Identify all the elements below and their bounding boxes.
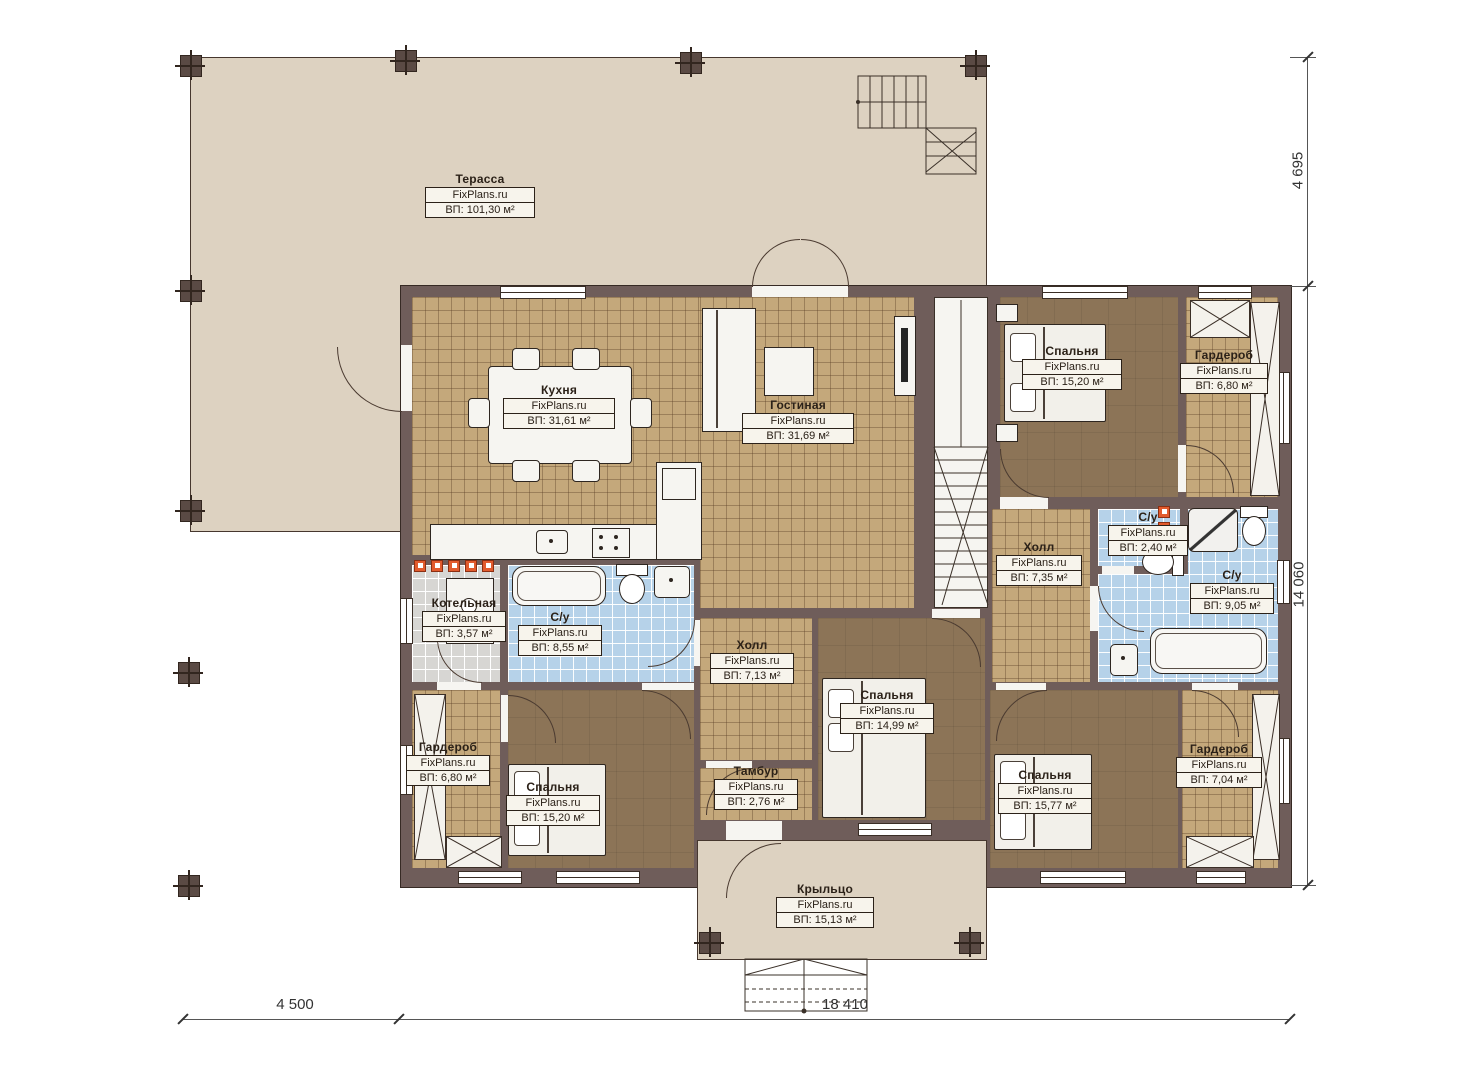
room-name: Кухня: [503, 383, 615, 397]
nightstand: [996, 424, 1018, 442]
room-name: С/у: [518, 610, 602, 624]
radiator-cell: [431, 560, 443, 572]
dimension-extension: [1290, 57, 1316, 58]
radiator-cell: [482, 560, 494, 572]
label-terrace: Терасса FixPlans.ru ВП: 101,30 м²: [425, 172, 535, 218]
room-name: Спальня: [840, 688, 934, 702]
dimension-line: [1307, 57, 1308, 886]
door-opening: [932, 609, 980, 618]
room-name: Холл: [710, 638, 794, 652]
door-opening: [501, 695, 508, 742]
dimension-extension: [1290, 885, 1316, 886]
window: [1040, 871, 1126, 884]
sink: [1110, 644, 1138, 676]
room-name: Гардероб: [1176, 742, 1262, 756]
brand-text: FixPlans.ru: [1023, 360, 1121, 375]
room-area: ВП: 7,13 м²: [711, 669, 793, 683]
window: [458, 871, 522, 884]
terrace-steps: [856, 72, 988, 178]
label-living-room: Гостиная FixPlans.ru ВП: 31,69 м²: [742, 398, 854, 444]
room-info-box: FixPlans.ru ВП: 15,77 м²: [998, 783, 1092, 814]
brand-text: FixPlans.ru: [841, 704, 933, 719]
room-name: Гардероб: [406, 740, 490, 754]
room-info-box: FixPlans.ru ВП: 15,20 м²: [506, 795, 600, 826]
room-info-box: FixPlans.ru ВП: 6,80 м²: [406, 755, 490, 786]
sink-tap: [1121, 656, 1125, 660]
room-info-box: FixPlans.ru ВП: 3,57 м²: [422, 611, 506, 642]
fridge: [662, 468, 696, 500]
chair: [630, 398, 652, 428]
room-area: ВП: 7,04 м²: [1177, 773, 1261, 787]
brand-text: FixPlans.ru: [999, 784, 1091, 799]
shower: [1188, 508, 1238, 552]
coffee-table: [764, 347, 814, 396]
brand-text: FixPlans.ru: [1181, 364, 1267, 379]
room-area: ВП: 31,69 м²: [743, 429, 853, 443]
wardrobe-hatch: [1190, 300, 1250, 338]
radiator-cell: [414, 560, 426, 572]
floor-plan: 4 695 14 060 4 500 18 410 Терасса FixPla…: [0, 0, 1473, 1080]
door-opening: [1192, 683, 1238, 690]
label-boiler-room: Котельная FixPlans.ru ВП: 3,57 м²: [422, 596, 506, 642]
burner: [614, 535, 618, 539]
wardrobe-hatch: [446, 836, 502, 868]
door-opening: [726, 821, 782, 840]
label-bedroom-bottom-left: Спальня FixPlans.ru ВП: 15,20 м²: [506, 780, 600, 826]
room-area: ВП: 31,61 м²: [504, 414, 614, 428]
label-wc-small: С/у FixPlans.ru ВП: 2,40 м²: [1108, 510, 1188, 556]
room-area: ВП: 6,80 м²: [407, 771, 489, 785]
room-info-box: FixPlans.ru ВП: 8,55 м²: [518, 625, 602, 656]
room-info-box: FixPlans.ru ВП: 7,35 м²: [996, 555, 1082, 586]
window: [1042, 286, 1128, 299]
brand-text: FixPlans.ru: [519, 626, 601, 641]
column: [395, 50, 417, 72]
room-area: ВП: 15,13 м²: [777, 913, 873, 927]
dimension-extension: [1290, 286, 1316, 287]
room-info-box: FixPlans.ru ВП: 6,80 м²: [1180, 363, 1268, 394]
bathtub: [512, 566, 606, 606]
burner: [599, 535, 603, 539]
label-porch: Крыльцо FixPlans.ru ВП: 15,13 м²: [776, 882, 874, 928]
chair: [572, 460, 600, 482]
column: [180, 280, 202, 302]
chair: [572, 348, 600, 370]
brand-text: FixPlans.ru: [777, 898, 873, 913]
room-name: Гостиная: [742, 398, 854, 412]
room-area: ВП: 9,05 м²: [1191, 599, 1273, 613]
dimension-label: 4 695: [1290, 141, 1307, 201]
room-area: ВП: 2,40 м²: [1109, 541, 1187, 555]
window: [400, 598, 413, 644]
brand-text: FixPlans.ru: [997, 556, 1081, 571]
room-name: Гардероб: [1180, 348, 1268, 362]
column: [959, 932, 981, 954]
room-info-box: FixPlans.ru ВП: 7,13 м²: [710, 653, 794, 684]
toilet-bowl: [1242, 516, 1266, 546]
door-opening: [694, 620, 700, 666]
brand-text: FixPlans.ru: [504, 399, 614, 414]
column: [680, 52, 702, 74]
room-area: ВП: 7,35 м²: [997, 571, 1081, 585]
sink-tap: [669, 578, 673, 582]
dimension-line: [183, 1019, 1290, 1020]
room-name: Крыльцо: [776, 882, 874, 896]
room-name: Терасса: [425, 172, 535, 186]
room-info-box: FixPlans.ru ВП: 15,13 м²: [776, 897, 874, 928]
door-opening: [1102, 566, 1134, 574]
chair: [512, 348, 540, 370]
pillow: [1000, 811, 1026, 840]
burner: [599, 546, 603, 550]
label-bedroom-bottom-right: Спальня FixPlans.ru ВП: 15,77 м²: [998, 768, 1092, 814]
dimension-label: 14 060: [1291, 550, 1308, 620]
door-opening: [752, 286, 848, 297]
room-info-box: FixPlans.ru ВП: 2,76 м²: [714, 779, 798, 810]
brand-text: FixPlans.ru: [423, 612, 505, 627]
room-info-box: FixPlans.ru ВП: 31,69 м²: [742, 413, 854, 444]
chair: [512, 460, 540, 482]
room-info-box: FixPlans.ru ВП: 14,99 м²: [840, 703, 934, 734]
label-kitchen: Кухня FixPlans.ru ВП: 31,61 м²: [503, 383, 615, 429]
window: [556, 871, 640, 884]
column: [180, 500, 202, 522]
door-opening: [401, 345, 412, 411]
brand-text: FixPlans.ru: [715, 780, 797, 795]
radiator-cell: [465, 560, 477, 572]
label-wc-right: С/у FixPlans.ru ВП: 9,05 м²: [1190, 568, 1274, 614]
tv: [901, 328, 908, 382]
bathtub: [1150, 628, 1267, 674]
room-name: С/у: [1108, 510, 1188, 524]
door-opening: [1178, 445, 1186, 492]
window: [1198, 286, 1252, 299]
room-area: ВП: 15,77 м²: [999, 799, 1091, 813]
room-area: ВП: 101,30 м²: [426, 203, 534, 217]
window: [500, 286, 586, 299]
door-opening: [437, 682, 481, 690]
label-wc-left: С/у FixPlans.ru ВП: 8,55 м²: [518, 610, 602, 656]
dimension-label: 4 500: [245, 996, 345, 1013]
radiator-cell: [448, 560, 460, 572]
room-area: ВП: 2,76 м²: [715, 795, 797, 809]
brand-text: FixPlans.ru: [407, 756, 489, 771]
room-area: ВП: 6,80 м²: [1181, 379, 1267, 393]
label-tambour: Тамбур FixPlans.ru ВП: 2,76 м²: [714, 764, 798, 810]
room-info-box: FixPlans.ru ВП: 9,05 м²: [1190, 583, 1274, 614]
radiator: [414, 560, 494, 572]
label-hall-center: Холл FixPlans.ru ВП: 7,13 м²: [710, 638, 794, 684]
room-info-box: FixPlans.ru ВП: 31,61 м²: [503, 398, 615, 429]
nightstand: [996, 304, 1018, 322]
room-name: Холл: [996, 540, 1082, 554]
column: [965, 55, 987, 77]
door-opening: [1000, 497, 1048, 509]
dimension-label: 18 410: [795, 996, 895, 1013]
sink-tap: [549, 539, 553, 543]
room-area: ВП: 15,20 м²: [1023, 375, 1121, 389]
brand-text: FixPlans.ru: [743, 414, 853, 429]
brand-text: FixPlans.ru: [711, 654, 793, 669]
door-opening: [642, 683, 694, 690]
room-area: ВП: 8,55 м²: [519, 641, 601, 655]
brand-text: FixPlans.ru: [426, 188, 534, 203]
label-wardrobe-bottom-right: Гардероб FixPlans.ru ВП: 7,04 м²: [1176, 742, 1262, 788]
brand-text: FixPlans.ru: [1109, 526, 1187, 541]
room-name: Котельная: [422, 596, 506, 610]
label-hall-right: Холл FixPlans.ru ВП: 7,35 м²: [996, 540, 1082, 586]
door-opening: [996, 683, 1046, 690]
label-wardrobe-top-right: Гардероб FixPlans.ru ВП: 6,80 м²: [1180, 348, 1268, 394]
window: [1277, 560, 1290, 604]
door-opening: [1090, 586, 1098, 631]
room-area: ВП: 15,20 м²: [507, 811, 599, 825]
room-info-box: FixPlans.ru ВП: 7,04 м²: [1176, 757, 1262, 788]
label-bedroom-top-right: Спальня FixPlans.ru ВП: 15,20 м²: [1022, 344, 1122, 390]
toilet-bowl: [619, 574, 645, 604]
room-hall-right-floor: [992, 509, 1090, 682]
stairs: [934, 297, 988, 608]
room-info-box: FixPlans.ru ВП: 2,40 м²: [1108, 525, 1188, 556]
sink: [654, 566, 690, 598]
column: [178, 875, 200, 897]
brand-text: FixPlans.ru: [1191, 584, 1273, 599]
room-info-box: FixPlans.ru ВП: 101,30 м²: [425, 187, 535, 218]
room-name: Спальня: [998, 768, 1092, 782]
room-info-box: FixPlans.ru ВП: 15,20 м²: [1022, 359, 1122, 390]
label-wardrobe-bottom-left: Гардероб FixPlans.ru ВП: 6,80 м²: [406, 740, 490, 786]
wardrobe-hatch: [1186, 836, 1254, 868]
column: [178, 662, 200, 684]
window: [1196, 871, 1246, 884]
window: [858, 823, 932, 836]
wardrobe-hatch: [1250, 302, 1280, 496]
brand-text: FixPlans.ru: [1177, 758, 1261, 773]
column: [699, 932, 721, 954]
room-name: Спальня: [1022, 344, 1122, 358]
column: [180, 55, 202, 77]
room-name: Спальня: [506, 780, 600, 794]
room-name: С/у: [1190, 568, 1274, 582]
brand-text: FixPlans.ru: [507, 796, 599, 811]
chair: [468, 398, 490, 428]
label-bedroom-center: Спальня FixPlans.ru ВП: 14,99 м²: [840, 688, 934, 734]
sofa-cushion-line: [716, 310, 718, 428]
stove: [592, 528, 630, 558]
room-area: ВП: 3,57 м²: [423, 627, 505, 641]
room-area: ВП: 14,99 м²: [841, 719, 933, 733]
room-name: Тамбур: [714, 764, 798, 778]
burner: [614, 546, 618, 550]
